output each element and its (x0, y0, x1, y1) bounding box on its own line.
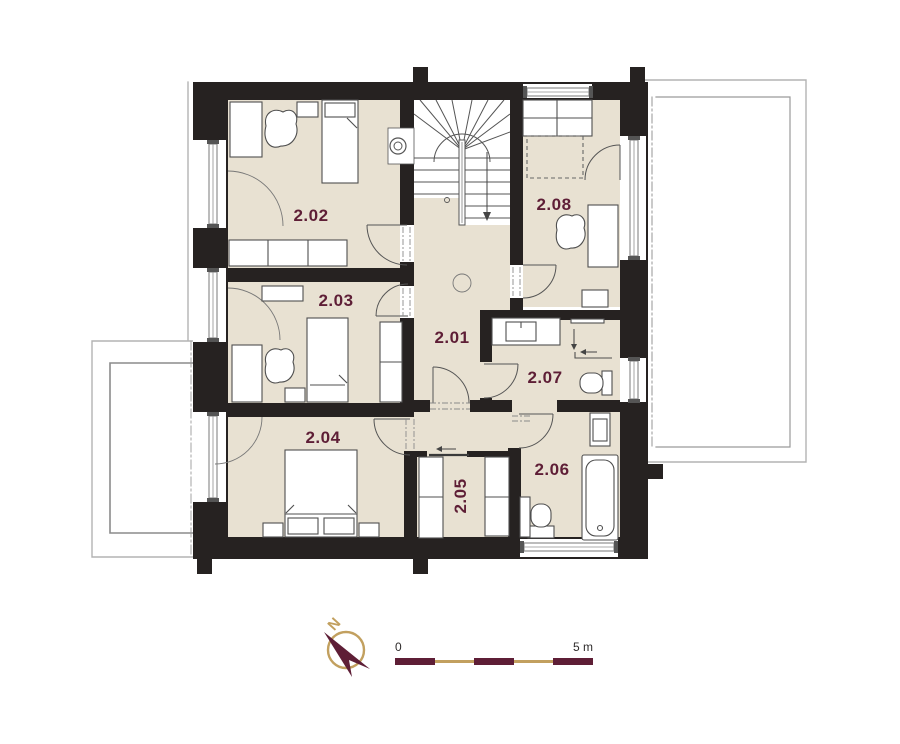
pillow-icon (324, 518, 354, 534)
room-label-2-04: 2.04 (305, 428, 340, 447)
desk-icon (232, 345, 262, 402)
shelf-icon (262, 286, 303, 301)
chimney-block (197, 559, 212, 574)
chimney-block (630, 67, 645, 82)
bathtub-icon (582, 455, 618, 540)
chimney-block (413, 67, 428, 82)
nightstand-icon (297, 102, 318, 117)
room-label-2-01: 2.01 (434, 328, 469, 347)
terrace-right-outer (644, 80, 806, 462)
duct-icon (390, 138, 406, 154)
armchair-icon (265, 110, 297, 147)
toilet-icon (580, 373, 603, 393)
room-label-2-02: 2.02 (293, 206, 328, 225)
dresser-icon (229, 240, 347, 266)
floor-plan-page: 2.01 2.02 2.03 2.04 2.05 2.06 2.07 2.08 … (0, 0, 900, 744)
room-label-2-08: 2.08 (536, 195, 571, 214)
nightstand-icon (285, 388, 305, 402)
towel-rail-icon (571, 319, 604, 323)
bed-icon (307, 318, 348, 402)
north-label: N (324, 615, 344, 634)
room-label-2-03: 2.03 (318, 291, 353, 310)
north-arrow-icon: N (324, 615, 370, 677)
desk-icon (588, 205, 618, 267)
chimney-block (648, 464, 663, 479)
stairs-icon (414, 100, 510, 225)
scale-bar: 0 5 m (395, 640, 593, 665)
terrace-right-inner (656, 97, 790, 447)
scale-start-label: 0 (395, 640, 402, 654)
chimney-block (413, 559, 428, 574)
floor-plan-svg: 2.01 2.02 2.03 2.04 2.05 2.06 2.07 2.08 … (0, 0, 900, 744)
cistern-icon (528, 526, 554, 538)
room-label-2-07: 2.07 (527, 368, 562, 387)
nightstand-icon (263, 523, 283, 537)
armchair-icon (556, 215, 585, 249)
shelf-icon (582, 290, 608, 307)
scale-end-label: 5 m (573, 640, 593, 654)
room-label-2-05: 2.05 (451, 478, 470, 513)
toilet-icon (531, 504, 551, 527)
nightstand-icon (359, 523, 379, 537)
pillow-icon (325, 103, 355, 117)
wardrobe-icon (230, 102, 262, 157)
armchair-icon (265, 349, 294, 383)
room-label-2-06: 2.06 (534, 460, 569, 479)
pillow-icon (288, 518, 318, 534)
partition-stub (520, 497, 530, 537)
